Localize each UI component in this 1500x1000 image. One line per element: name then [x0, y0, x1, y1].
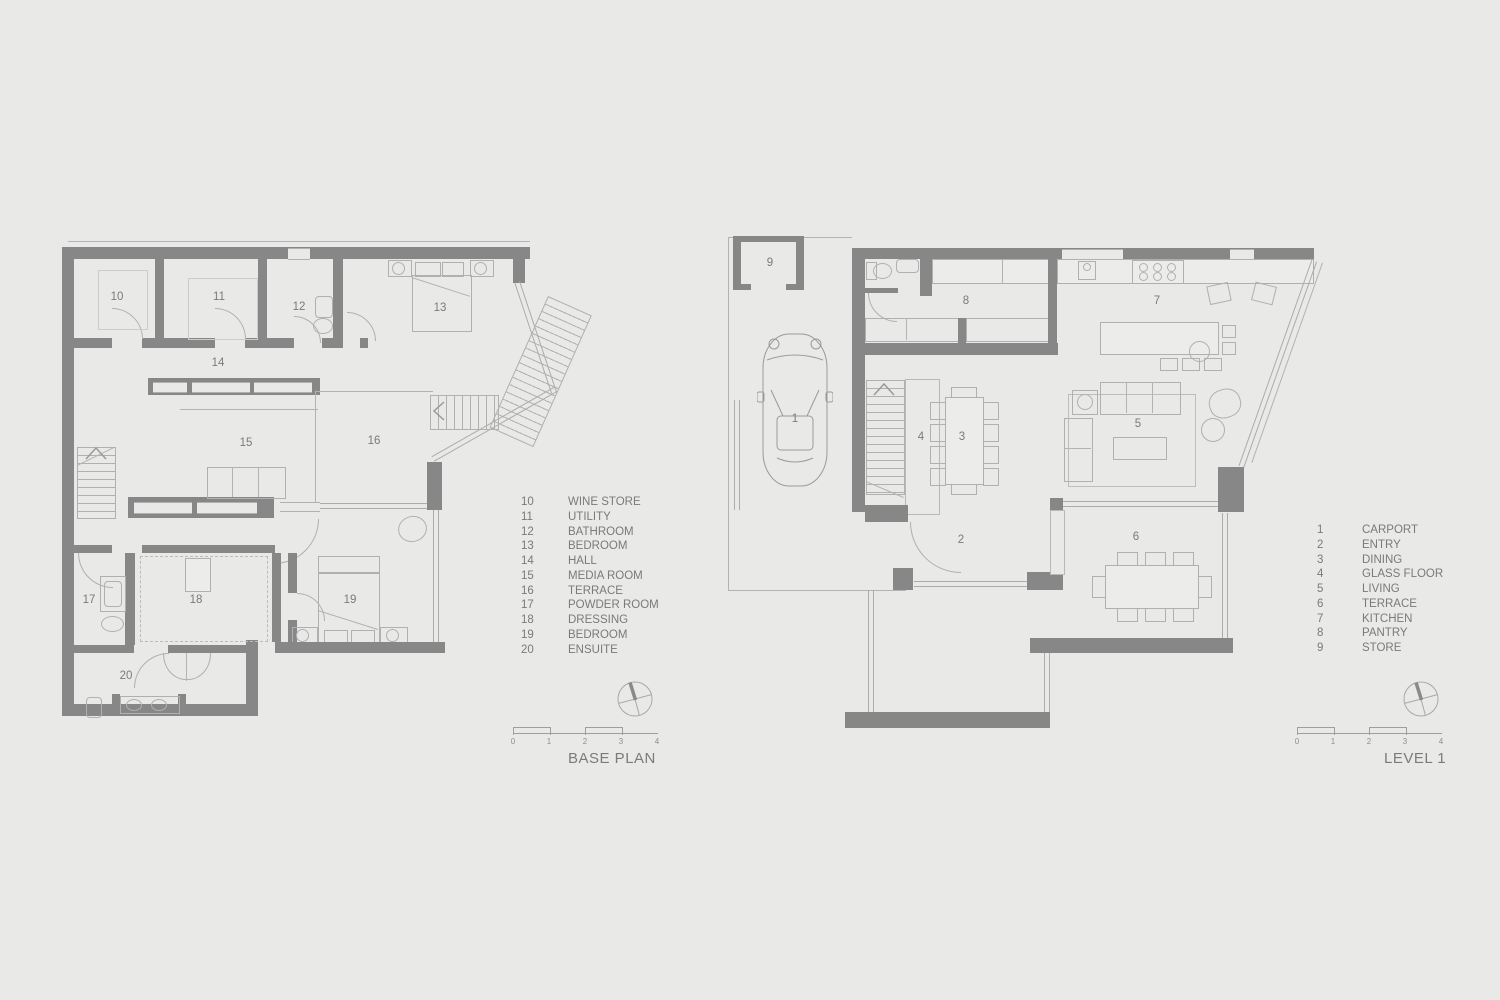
- plan-title: LEVEL 1: [1384, 750, 1446, 767]
- legend-row: 5LIVING: [1317, 582, 1443, 597]
- wall: [1218, 467, 1244, 512]
- chair: [1117, 552, 1138, 566]
- chair: [983, 468, 999, 486]
- counter: [966, 318, 1050, 342]
- chair: [951, 387, 977, 398]
- chair: [1206, 282, 1231, 305]
- legend-row: 9STORE: [1317, 641, 1443, 656]
- chair: [951, 484, 977, 495]
- wall: [1048, 258, 1057, 355]
- burner: [1139, 263, 1148, 272]
- chair: [1145, 552, 1166, 566]
- sliding-door: [1050, 510, 1065, 575]
- outdoor-table: [1105, 565, 1199, 609]
- sofa-cushion-line: [1126, 382, 1127, 413]
- legend-row: 4GLASS FLOOR: [1317, 567, 1443, 582]
- wall: [733, 284, 751, 290]
- room-label-4: 4: [918, 431, 924, 443]
- tap: [1083, 263, 1091, 271]
- room-label-12: 12: [293, 301, 306, 313]
- chair: [1173, 552, 1194, 566]
- sofa: [1100, 382, 1181, 415]
- chair: [1092, 576, 1106, 598]
- glazing: [1044, 653, 1050, 712]
- wall: [920, 258, 932, 296]
- burner: [1153, 272, 1162, 281]
- scale-tick: 2: [1367, 737, 1371, 746]
- glazing: [1063, 501, 1218, 507]
- room-label-7: 7: [1154, 295, 1160, 307]
- legend-row: 2ENTRY: [1317, 538, 1443, 553]
- legend-row: 8PANTRY: [1317, 626, 1443, 641]
- wall: [733, 236, 741, 290]
- stairs: [866, 380, 905, 495]
- wall: [796, 236, 804, 290]
- legend-row: 3DINING: [1317, 553, 1443, 568]
- burner: [1167, 263, 1176, 272]
- room-label-17: 17: [83, 594, 96, 606]
- stair-direction-arrow: [873, 382, 895, 396]
- glazing: [914, 581, 1028, 587]
- wall: [865, 343, 1058, 355]
- lamp: [1077, 394, 1093, 410]
- counter: [1002, 259, 1050, 284]
- legend-row: 7KITCHEN: [1317, 612, 1443, 627]
- chair: [1117, 608, 1138, 622]
- wall: [733, 236, 803, 242]
- screen-wall: [734, 400, 740, 510]
- glazing: [1222, 513, 1228, 638]
- basin: [896, 259, 919, 273]
- room-label-14: 14: [212, 357, 225, 369]
- scale-tick: 0: [1295, 737, 1299, 746]
- stool: [1222, 325, 1236, 338]
- chair: [1251, 282, 1277, 306]
- room-label-11: 11: [213, 291, 225, 303]
- stool: [1222, 342, 1236, 355]
- sofa: [1064, 418, 1093, 482]
- door-arc: [910, 522, 961, 573]
- wall: [958, 318, 966, 344]
- toilet: [873, 263, 892, 279]
- scale-tick: 3: [1403, 737, 1407, 746]
- room-label-13: 13: [434, 302, 447, 314]
- car-icon: [757, 330, 833, 490]
- room-label-1: 1: [792, 413, 798, 425]
- sofa-cushion-line: [1152, 382, 1153, 413]
- chair: [1145, 608, 1166, 622]
- armchair: [1205, 385, 1244, 422]
- counter-divider: [906, 318, 907, 340]
- carport-edge: [728, 237, 729, 590]
- legend-row: 6TERRACE: [1317, 597, 1443, 612]
- legend-level-1: 1CARPORT 2ENTRY 3DINING 4GLASS FLOOR 5LI…: [1317, 523, 1443, 656]
- glazing: [1239, 260, 1317, 467]
- chair: [983, 446, 999, 464]
- scale-baseline: [1297, 733, 1442, 734]
- north-arrow-compass: [1399, 677, 1443, 721]
- burner: [1139, 272, 1148, 281]
- room-label-16: 16: [368, 435, 381, 447]
- scale-tick: 1: [1331, 737, 1335, 746]
- chair: [983, 424, 999, 442]
- wall: [893, 568, 913, 590]
- counter: [865, 318, 959, 342]
- coffee-table: [1113, 437, 1167, 460]
- room-label-15: 15: [240, 437, 253, 449]
- plant: [1189, 341, 1210, 362]
- room-label-5: 5: [1135, 418, 1141, 430]
- chair: [930, 424, 946, 442]
- wall: [1030, 638, 1233, 653]
- stool: [1160, 358, 1178, 371]
- chair: [930, 402, 946, 420]
- glazing: [868, 590, 874, 712]
- room-label-8: 8: [963, 295, 969, 307]
- room-label-6: 6: [1133, 531, 1139, 543]
- wall: [865, 505, 908, 522]
- chair: [1198, 576, 1212, 598]
- wall: [786, 284, 804, 290]
- chair: [983, 402, 999, 420]
- chair: [1173, 608, 1194, 622]
- carport-edge: [728, 590, 906, 591]
- round-table: [1201, 418, 1225, 442]
- legend-row: 1CARPORT: [1317, 523, 1443, 538]
- room-label-18: 18: [190, 594, 203, 606]
- chair: [930, 446, 946, 464]
- wall: [845, 712, 1050, 728]
- stool: [1204, 358, 1222, 371]
- counter: [932, 259, 1004, 284]
- room-label-20: 20: [120, 670, 133, 682]
- room-label-10: 10: [111, 291, 124, 303]
- room-label-3: 3: [959, 431, 965, 443]
- scale-tick: 4: [1439, 737, 1443, 746]
- burner: [1167, 272, 1176, 281]
- level-1-plan: 1 2 3 4 5 6 7 8 9 1CARPORT 2ENTRY 3DININ…: [0, 0, 1500, 1000]
- chair: [930, 468, 946, 486]
- sofa-cushion-line: [1064, 448, 1091, 449]
- floor-plan-sheet: 10 11 12 13 14 15 16 17 18 19 20 10WINE …: [0, 0, 1500, 1000]
- room-label-9: 9: [767, 257, 773, 269]
- room-label-19: 19: [344, 594, 357, 606]
- room-label-2: 2: [958, 534, 964, 546]
- burner: [1153, 263, 1162, 272]
